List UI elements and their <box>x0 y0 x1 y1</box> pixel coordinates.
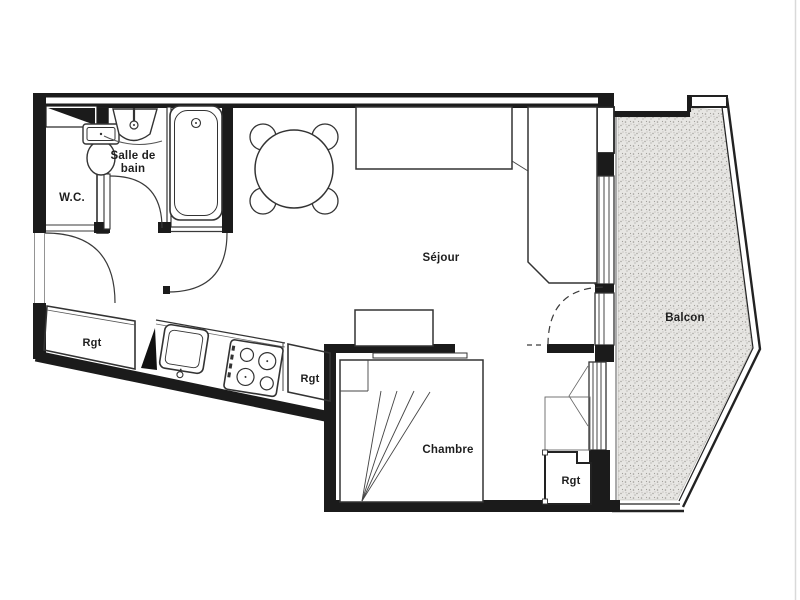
room-label-balcony: Balcon <box>665 312 705 324</box>
entrance-door-arc <box>45 233 115 303</box>
living-room-window <box>595 176 614 284</box>
window-opening-mark <box>569 366 588 426</box>
kitchen-sink-basin <box>165 330 204 369</box>
shower-door-hinge <box>163 286 170 294</box>
storage-pivot <box>543 450 548 455</box>
washbasin-drain <box>133 124 135 126</box>
floor-plan: W.C. Salle de bain Séjour Balcon Chambre… <box>0 0 800 600</box>
room-label-living-room: Séjour <box>423 252 460 264</box>
bathtub-drain-dot <box>195 122 197 124</box>
stove <box>223 339 283 397</box>
headboard-shelf <box>373 353 467 358</box>
bedroom-furniture <box>340 360 591 504</box>
bathroom-door-arc <box>110 176 162 228</box>
room-label-bedroom: Chambre <box>422 444 473 456</box>
balcony-step-wall <box>687 95 691 112</box>
living-room-furniture <box>250 107 597 346</box>
top-wall-outer <box>33 93 599 98</box>
kitchen-duct-wedge <box>141 328 157 370</box>
wall-block-2 <box>595 345 614 362</box>
kitchen-sink <box>158 324 209 381</box>
balcony-railing-box <box>691 96 727 107</box>
wall-block-1 <box>597 153 614 176</box>
room-label-wc: W.C. <box>59 192 85 204</box>
left-wall-upper <box>33 93 46 233</box>
dining-table <box>255 130 333 208</box>
balcony-door-window <box>595 293 614 345</box>
kitchen-faucet <box>177 371 184 378</box>
side-table <box>355 310 433 346</box>
door-jamb-bathroom <box>158 222 171 233</box>
wall-block-3 <box>589 450 610 502</box>
bed <box>340 360 483 502</box>
storage-pivot <box>543 499 548 504</box>
sofa-top <box>356 107 512 169</box>
shower-door-arc <box>168 233 227 292</box>
storage-label-kitchen-left: Rgt <box>83 337 102 349</box>
sofa-corner-line <box>512 161 528 171</box>
living-bedroom-wall-b <box>547 344 594 353</box>
wall-hollow-section <box>597 107 614 153</box>
storage-label-bedroom: Rgt <box>562 475 581 487</box>
bathtub-right-wall <box>222 104 233 233</box>
window-sill-block <box>595 284 614 293</box>
room-label-bathroom-line2: bain <box>121 163 145 175</box>
balcony-floor <box>618 108 752 500</box>
floor-plan-page: W.C. Salle de bain Séjour Balcon Chambre… <box>0 0 800 600</box>
sofa-right <box>528 107 597 283</box>
bathroom-door-leaf <box>104 174 110 229</box>
room-label-bathroom-line1: Salle de <box>110 150 155 162</box>
balcony-top-wall <box>614 111 690 117</box>
storage-label-kitchen-right: Rgt <box>301 373 320 385</box>
toilet-button <box>100 133 102 135</box>
wardrobe-zone <box>545 397 590 450</box>
storage-left-edge <box>47 310 135 325</box>
balcony <box>612 96 760 511</box>
top-wall-inner <box>33 104 599 109</box>
bedroom-window <box>589 362 606 450</box>
